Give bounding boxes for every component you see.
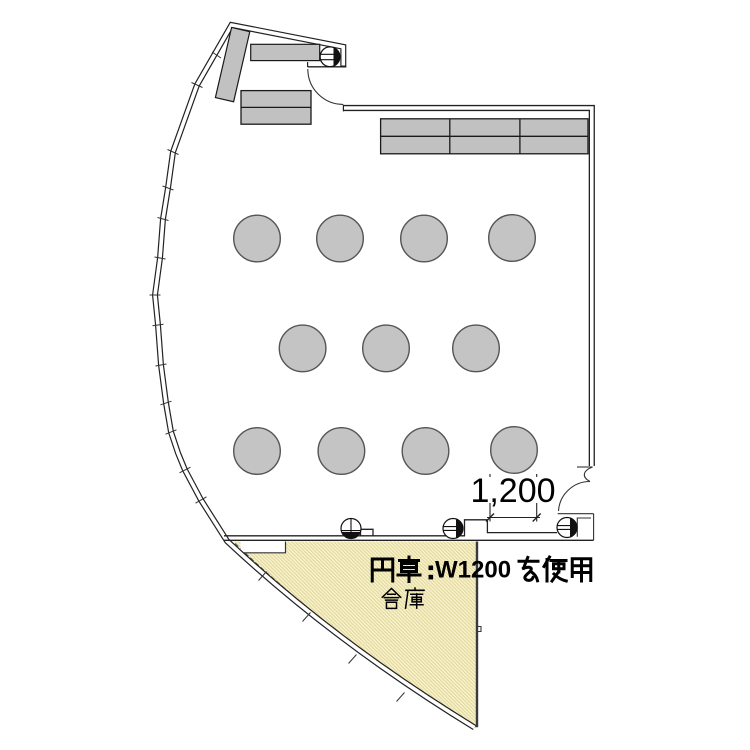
svg-text:1,200: 1,200 bbox=[470, 472, 555, 510]
svg-text:W1200: W1200 bbox=[435, 557, 511, 584]
